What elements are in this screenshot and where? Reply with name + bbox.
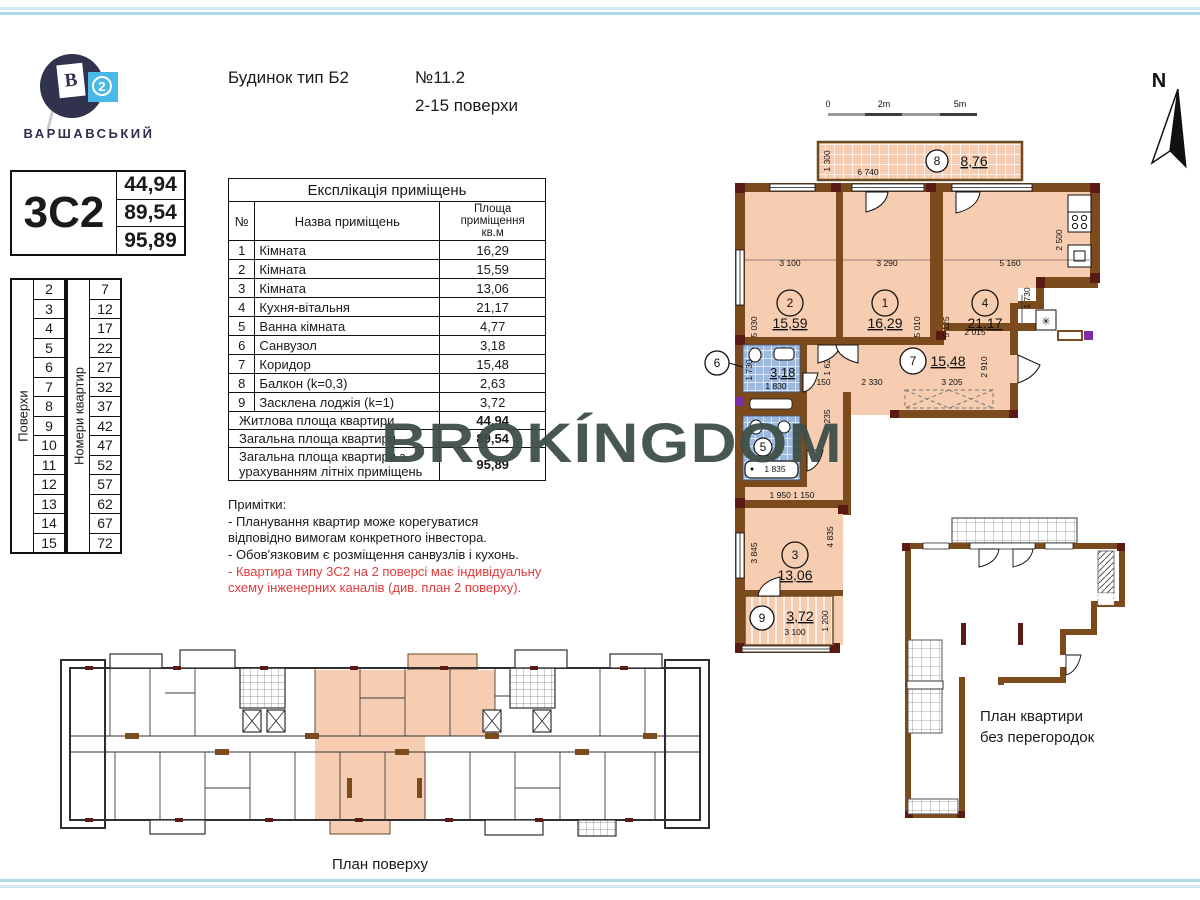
floor-cell: 7 xyxy=(34,378,64,398)
svg-text:1 200: 1 200 xyxy=(820,610,830,632)
apt-cell: 32 xyxy=(90,378,120,398)
svg-text:6: 6 xyxy=(714,356,721,370)
notes-title: Примітки: xyxy=(228,497,558,513)
table-row: 2Кімната15,59 xyxy=(229,260,546,279)
svg-text:1 830: 1 830 xyxy=(765,381,787,391)
apt-cell: 37 xyxy=(90,397,120,417)
svg-text:7: 7 xyxy=(910,354,917,368)
notes-block: Примітки: - Планування квартир може коре… xyxy=(228,497,558,596)
bottom-stripe-light xyxy=(0,885,1200,888)
floor-cell: 11 xyxy=(34,456,64,476)
svg-text:5 160: 5 160 xyxy=(999,258,1021,268)
svg-text:5m: 5m xyxy=(954,99,967,109)
apt-cell: 27 xyxy=(90,358,120,378)
col-header-name: Назва приміщень xyxy=(255,202,440,241)
floors-table-header: Поверхи xyxy=(12,280,34,552)
plan-without-partitions xyxy=(895,505,1195,840)
developer-logo: В 2 ВАРШАВСЬКИЙ xyxy=(14,50,184,150)
svg-text:15,48: 15,48 xyxy=(930,353,965,369)
apt-cell: 47 xyxy=(90,436,120,456)
floor-cell: 15 xyxy=(34,534,64,553)
floor-cell: 14 xyxy=(34,514,64,534)
bathroom-6: 3,18 1 830 1 730 6 xyxy=(705,345,800,392)
total-area-value: 89,54 xyxy=(117,200,184,228)
svg-text:5 010: 5 010 xyxy=(912,316,922,338)
top-stripe-dark xyxy=(0,12,1200,15)
floor-cell: 8 xyxy=(34,397,64,417)
note-item-highlighted: - Квартира типу 3С2 на 2 поверсі має інд… xyxy=(228,564,558,596)
bottom-stripe-dark xyxy=(0,879,1200,882)
svg-text:8: 8 xyxy=(934,154,941,168)
table-row: 5Ванна кімната4,77 xyxy=(229,317,546,336)
floors-table: Поверхи 2 3 4 5 6 7 8 9 10 11 12 13 14 1… xyxy=(10,278,66,554)
note-item: - Обов'язковим є розміщення санвузлів і … xyxy=(228,547,558,563)
brand-name: ВАРШАВСЬКИЙ xyxy=(14,126,164,141)
plan-document-page: { "colors": { "accent_red": "#e03a3a", "… xyxy=(0,0,1200,900)
svg-text:3: 3 xyxy=(792,548,799,562)
brokingdom-watermark: BROKÍNGDOM xyxy=(381,410,843,475)
col-header-area: Площа приміщення кв.м xyxy=(440,202,546,241)
svg-text:N: N xyxy=(1152,70,1166,92)
flag-icon: В xyxy=(56,63,85,99)
table-row: 6Санвузол3,18 xyxy=(229,336,546,355)
apartment-number: №11.2 xyxy=(415,68,465,88)
balcony-8: 8 8,76 1 300 6 740 xyxy=(818,142,1022,180)
badge-number: 2 xyxy=(92,76,112,96)
top-stripe-light xyxy=(0,7,1200,10)
total-with-summer-value: 95,89 xyxy=(117,227,184,254)
svg-text:2: 2 xyxy=(787,296,794,310)
svg-text:5 030: 5 030 xyxy=(749,316,759,338)
table-row: 3Кімната13,06 xyxy=(229,279,546,298)
svg-text:9: 9 xyxy=(759,611,766,625)
logo-badge: 2 xyxy=(88,72,118,102)
svg-text:21,17: 21,17 xyxy=(967,315,1002,331)
apt-cell: 57 xyxy=(90,475,120,495)
svg-text:3 205: 3 205 xyxy=(941,377,963,387)
svg-text:15,59: 15,59 xyxy=(772,315,807,331)
apt-cell: 67 xyxy=(90,514,120,534)
floor-cell: 6 xyxy=(34,358,64,378)
table-row: 4Кухня-вітальня21,17 xyxy=(229,298,546,317)
north-arrow: N xyxy=(1152,70,1186,167)
svg-text:1 730: 1 730 xyxy=(744,359,754,381)
svg-text:1 300: 1 300 xyxy=(822,150,832,172)
svg-text:2 500: 2 500 xyxy=(1054,229,1064,251)
apt-cell: 12 xyxy=(90,300,120,320)
note-item: - Планування квартир може корегуватися в… xyxy=(228,514,558,546)
svg-text:2m: 2m xyxy=(878,99,891,109)
apt-cell: 62 xyxy=(90,495,120,515)
living-area-value: 44,94 xyxy=(117,172,184,200)
svg-text:1: 1 xyxy=(882,296,889,310)
scale-bar: 0 2m 5m xyxy=(825,99,977,116)
apt-cell: 72 xyxy=(90,534,120,553)
apt-cell: 52 xyxy=(90,456,120,476)
svg-text:3,18: 3,18 xyxy=(770,365,795,380)
table-row: 8Балкон (k=0,3)2,63 xyxy=(229,374,546,393)
floor-cell: 2 xyxy=(34,280,64,300)
floor-cell: 10 xyxy=(34,436,64,456)
svg-text:4 835: 4 835 xyxy=(825,526,835,548)
floor-cell: 4 xyxy=(34,319,64,339)
apt-cell: 17 xyxy=(90,319,120,339)
floor-plan-caption: План поверху xyxy=(295,856,465,873)
stair-core xyxy=(240,668,285,732)
svg-text:3 100: 3 100 xyxy=(779,258,801,268)
svg-text:8,76: 8,76 xyxy=(960,153,987,169)
col-header-no: № xyxy=(229,202,255,241)
floor-cell: 3 xyxy=(34,300,64,320)
apartment-type-code: 3С2 xyxy=(12,172,117,254)
building-type-title: Будинок тип Б2 xyxy=(228,68,349,88)
svg-text:3 290: 3 290 xyxy=(876,258,898,268)
svg-text:3 100: 3 100 xyxy=(784,627,806,637)
svg-text:5 125: 5 125 xyxy=(941,316,951,338)
svg-text:1 730: 1 730 xyxy=(1022,287,1032,309)
apartment-numbers-header: Номери квартир xyxy=(68,280,90,552)
svg-text:4: 4 xyxy=(982,296,989,310)
loggia-9: 9 3,72 3 100 1 200 xyxy=(745,596,833,645)
building-floor-plan xyxy=(55,648,715,860)
svg-text:2 330: 2 330 xyxy=(861,377,883,387)
apt-cell: 22 xyxy=(90,339,120,359)
no-partitions-caption: План квартири без перегородок xyxy=(980,706,1094,748)
svg-text:1 950 1 150: 1 950 1 150 xyxy=(770,490,815,500)
apt-cell: 42 xyxy=(90,417,120,437)
explication-title: Експлікація приміщень xyxy=(229,179,546,202)
table-row: 1Кімната16,29 xyxy=(229,241,546,260)
table-row: 9Засклена лоджія (k=1)3,72 xyxy=(229,393,546,412)
svg-text:✳: ✳ xyxy=(1041,316,1050,328)
apt-cell: 7 xyxy=(90,280,120,300)
svg-text:3 845: 3 845 xyxy=(749,542,759,564)
svg-text:2 910: 2 910 xyxy=(979,356,989,378)
apartment-numbers-table: Номери квартир 7 12 17 22 27 32 37 42 47… xyxy=(66,278,122,554)
svg-text:16,29: 16,29 xyxy=(867,315,902,331)
floor-cell: 9 xyxy=(34,417,64,437)
apartment-type-box: 3С2 44,94 89,54 95,89 xyxy=(10,170,186,256)
floor-cell: 12 xyxy=(34,475,64,495)
floor-cell: 5 xyxy=(34,339,64,359)
svg-text:13,06: 13,06 xyxy=(777,567,812,583)
table-row: 7Коридор15,48 xyxy=(229,355,546,374)
floor-cell: 13 xyxy=(34,495,64,515)
svg-text:3,72: 3,72 xyxy=(786,608,813,624)
svg-text:6 740: 6 740 xyxy=(857,167,879,177)
svg-text:0: 0 xyxy=(825,99,830,109)
floors-range: 2-15 поверхи xyxy=(415,96,518,116)
